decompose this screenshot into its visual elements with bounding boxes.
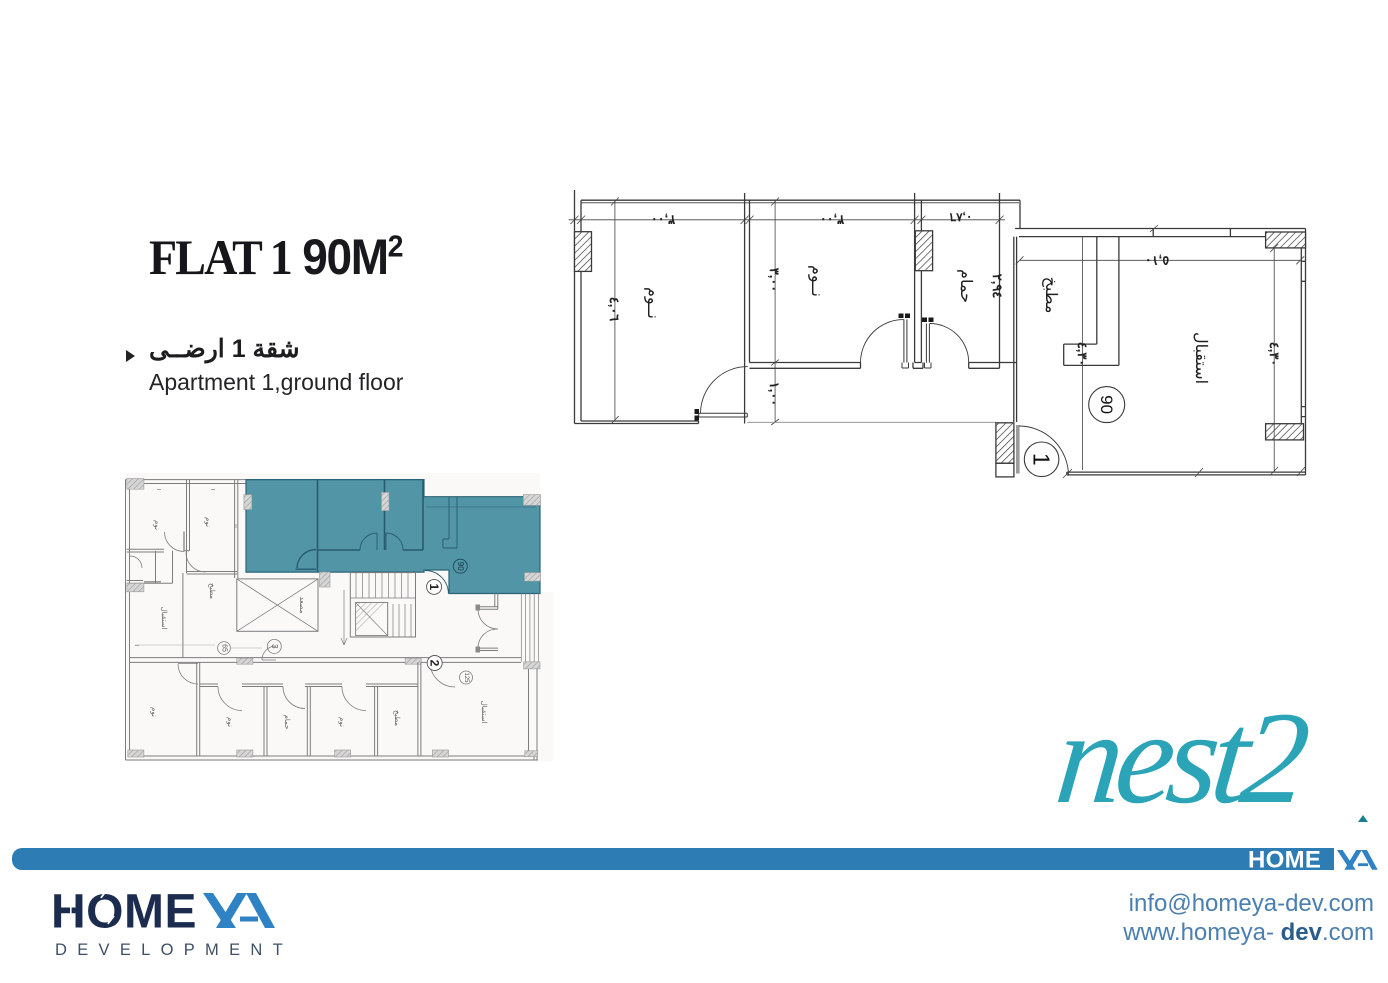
svg-text:٤,٣٠: ٤,٣٠ bbox=[1267, 342, 1282, 367]
svg-text:1: 1 bbox=[427, 584, 441, 591]
svg-text:حمام: حمام bbox=[957, 269, 974, 303]
svg-text:مصعد: مصعد bbox=[298, 597, 305, 614]
svg-text:نــوم: نــوم bbox=[644, 287, 661, 319]
svg-text:١,٠٠: ١,٠٠ bbox=[767, 382, 782, 407]
svg-text:استقبال: استقبال bbox=[1192, 332, 1209, 384]
svg-text:نــوم: نــوم bbox=[808, 265, 825, 297]
svg-text:90: 90 bbox=[456, 562, 465, 571]
svg-text:٢,٩٤: ٢,٩٤ bbox=[990, 274, 1005, 299]
svg-text:HOME: HOME bbox=[51, 886, 197, 939]
svg-text:استقبال: استقبال bbox=[480, 701, 488, 724]
svg-text:٣,٠٠: ٣,٠٠ bbox=[651, 213, 676, 228]
svg-text:1: 1 bbox=[1029, 453, 1055, 466]
svg-text:HOME: HOME bbox=[1248, 847, 1321, 874]
svg-text:نوم: نوم bbox=[226, 717, 233, 727]
svg-text:مطبخ: مطبخ bbox=[393, 710, 401, 726]
svg-text:٤,٣٠: ٤,٣٠ bbox=[1075, 342, 1090, 367]
svg-text:٣,٠٠: ٣,٠٠ bbox=[767, 268, 782, 293]
svg-text:نوم: نوم bbox=[204, 517, 211, 527]
svg-text:٣,٠٠: ٣,٠٠ bbox=[820, 213, 845, 228]
svg-text:DEVELOPMENT: DEVELOPMENT bbox=[55, 941, 293, 959]
svg-text:2: 2 bbox=[428, 660, 442, 667]
svg-text:استقبال: استقبال bbox=[160, 607, 168, 630]
svg-text:65: 65 bbox=[221, 644, 228, 652]
svg-text:نوم: نوم bbox=[338, 717, 345, 727]
svg-text:حمام: حمام bbox=[283, 715, 291, 730]
svg-text:٤,٠٦: ٤,٠٦ bbox=[607, 297, 622, 322]
svg-text:مطبخ: مطبخ bbox=[208, 583, 216, 599]
svg-text:نوم: نوم bbox=[153, 520, 160, 530]
svg-text:125: 125 bbox=[463, 672, 469, 683]
svg-text:٠,٨٦: ٠,٨٦ bbox=[949, 211, 972, 225]
svg-text:90: 90 bbox=[1097, 395, 1116, 414]
svg-text:نوم: نوم bbox=[150, 707, 157, 717]
svg-text:٥,١٠: ٥,١٠ bbox=[1145, 254, 1170, 269]
svg-text:مطبخ: مطبخ bbox=[1042, 277, 1059, 314]
